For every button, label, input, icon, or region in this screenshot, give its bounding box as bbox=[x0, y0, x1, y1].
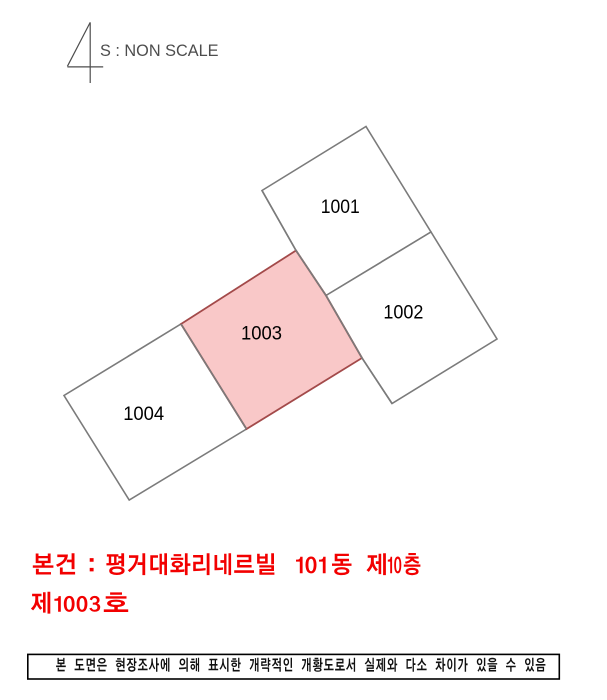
svg-text:1002: 1002 bbox=[383, 302, 423, 324]
svg-text:1003: 1003 bbox=[241, 322, 282, 344]
svg-text:S : NON SCALE: S : NON SCALE bbox=[100, 41, 219, 60]
svg-text:1004: 1004 bbox=[123, 403, 164, 425]
svg-text:1001: 1001 bbox=[321, 196, 360, 218]
